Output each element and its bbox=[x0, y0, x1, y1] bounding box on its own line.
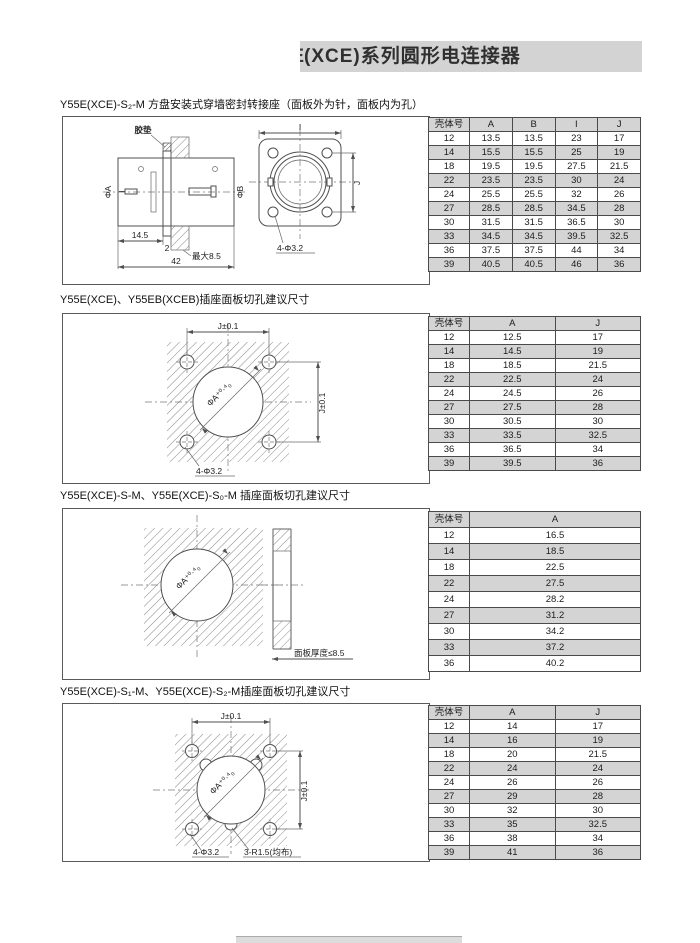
table-row: 3640.2 bbox=[429, 656, 641, 672]
table-cell: 39 bbox=[429, 846, 470, 860]
table-row: 3636.534 bbox=[429, 443, 641, 457]
wall-hatch-bottom bbox=[171, 226, 189, 250]
connector-drawing: 胶垫 ΦA ΦB 14.5 2 最大8.5 42 bbox=[63, 117, 427, 282]
mounting-hole bbox=[322, 207, 332, 217]
table-row: 1418.5 bbox=[429, 544, 641, 560]
table-cell: 39 bbox=[429, 258, 470, 272]
table-row: 141619 bbox=[429, 734, 641, 748]
table-cell: 18 bbox=[429, 748, 470, 762]
dimension-table-4: 壳体号AJ121417141619182021.5222424242626272… bbox=[428, 705, 641, 860]
table-cell: 17 bbox=[555, 331, 641, 345]
notches-label: 3-R1.5(均布) bbox=[244, 847, 292, 857]
table-cell: 17 bbox=[555, 720, 641, 734]
table-row: 3337.2 bbox=[429, 640, 641, 656]
table-row: 242626 bbox=[429, 776, 641, 790]
table-cell: 17 bbox=[598, 132, 641, 146]
holes-label: 4-Φ3.2 bbox=[196, 466, 222, 476]
section-3-drawing: ΦA⁺⁰·⁴₀ 面板厚度≤8.5 bbox=[62, 508, 430, 680]
table-cell: 24 bbox=[429, 592, 470, 608]
table-cell: 41 bbox=[470, 846, 556, 860]
panel-cutout-drawing: ΦA⁺⁰·⁴₀ 面板厚度≤8.5 bbox=[63, 509, 427, 677]
table-cell: 27 bbox=[429, 202, 470, 216]
dim-j-label: J bbox=[352, 181, 362, 185]
table-cell: 14 bbox=[429, 544, 470, 560]
table-cell: 39.5 bbox=[470, 457, 556, 471]
dim-42: 42 bbox=[171, 256, 181, 266]
table-cell: 33 bbox=[429, 640, 470, 656]
table-cell: 34 bbox=[555, 832, 641, 846]
holes-label: 4-Φ3.2 bbox=[277, 243, 303, 253]
section-4-drawing: ΦA⁺⁰·⁴₀ J±0.1 J±0.1 4-Φ3.2 3-R1.5(均布) bbox=[62, 703, 430, 862]
table-cell: 36 bbox=[429, 832, 470, 846]
column-header: J bbox=[555, 706, 641, 720]
table-row: 1818.521.5 bbox=[429, 359, 641, 373]
table-row: 222424 bbox=[429, 762, 641, 776]
panel-cutout-drawing: ΦA⁺⁰·⁴₀ J±0.1 J±0.1 4-Φ3.2 bbox=[63, 314, 427, 481]
table-cell: 23 bbox=[555, 132, 598, 146]
gasket bbox=[163, 143, 171, 151]
table-row: 2424.526 bbox=[429, 387, 641, 401]
table-row: 1819.519.527.521.5 bbox=[429, 160, 641, 174]
table-cell: 12 bbox=[429, 132, 470, 146]
table-cell: 32.5 bbox=[555, 818, 641, 832]
table-cell: 27.5 bbox=[470, 576, 641, 592]
table-cell: 27.5 bbox=[555, 160, 598, 174]
column-header: A bbox=[470, 317, 556, 331]
table-cell: 18 bbox=[429, 359, 470, 373]
section-2-drawing: ΦA⁺⁰·⁴₀ J±0.1 J±0.1 4-Φ3.2 bbox=[62, 313, 430, 484]
table-cell: 24 bbox=[555, 762, 641, 776]
table-row: 121417 bbox=[429, 720, 641, 734]
contact-pin bbox=[125, 189, 137, 194]
table-row: 1216.5 bbox=[429, 528, 641, 544]
mounting-hole bbox=[268, 148, 278, 158]
panel-view: ΦA⁺⁰·⁴₀ J±0.1 J±0.1 4-Φ3.2 bbox=[145, 321, 327, 476]
table-cell: 30.5 bbox=[470, 415, 556, 429]
table-cell: 30 bbox=[429, 415, 470, 429]
table-cell: 23.5 bbox=[470, 174, 513, 188]
table-cell: 20 bbox=[470, 748, 556, 762]
table-row: 2728.528.534.528 bbox=[429, 202, 641, 216]
section-4-title: Y55E(XCE)-S₁-M、Y55E(XCE)-S₂-M插座面板切孔建议尺寸 bbox=[60, 683, 350, 699]
table-row: 2731.2 bbox=[429, 608, 641, 624]
table-cell: 18 bbox=[429, 160, 470, 174]
table-cell: 19.5 bbox=[470, 160, 513, 174]
table-row: 363834 bbox=[429, 832, 641, 846]
table-cell: 33 bbox=[429, 818, 470, 832]
table-cell: 32.5 bbox=[598, 230, 641, 244]
table-cell: 26 bbox=[555, 387, 641, 401]
table-cell: 14 bbox=[429, 345, 470, 359]
page-title-banner: E(XCE)系列圆形电连接器 bbox=[300, 41, 642, 72]
table-cell: 28.5 bbox=[512, 202, 555, 216]
table-cell: 39.5 bbox=[555, 230, 598, 244]
table-cell: 37.2 bbox=[470, 640, 641, 656]
table-row: 2428.2 bbox=[429, 592, 641, 608]
table-header-row: 壳体号ABIJ bbox=[429, 118, 641, 132]
table-cell: 12 bbox=[429, 720, 470, 734]
table-cell: 35 bbox=[470, 818, 556, 832]
table-cell: 16.5 bbox=[470, 528, 641, 544]
contact-socket bbox=[189, 188, 211, 195]
table-cell: 18.5 bbox=[470, 359, 556, 373]
table-cell: 36 bbox=[555, 846, 641, 860]
table-cell: 22 bbox=[429, 762, 470, 776]
table-cell: 31.5 bbox=[512, 216, 555, 230]
column-header: A bbox=[470, 706, 556, 720]
column-header: 壳体号 bbox=[429, 512, 470, 528]
dimension-table-3: 壳体号A1216.51418.51822.52227.52428.22731.2… bbox=[428, 511, 641, 672]
table-cell: 22 bbox=[429, 174, 470, 188]
table-cell: 12 bbox=[429, 331, 470, 345]
table-cell: 24 bbox=[470, 762, 556, 776]
mounting-hole bbox=[268, 207, 278, 217]
table-row: 2222.524 bbox=[429, 373, 641, 387]
table-cell: 27 bbox=[429, 401, 470, 415]
table-cell: 29 bbox=[470, 790, 556, 804]
table-row: 3034.2 bbox=[429, 624, 641, 640]
phi-b-label: ΦB bbox=[235, 185, 245, 198]
table-row: 1415.515.52519 bbox=[429, 146, 641, 160]
table-cell: 36.5 bbox=[555, 216, 598, 230]
dim-2: 2 bbox=[165, 243, 170, 253]
table-header-row: 壳体号A bbox=[429, 512, 641, 528]
table-cell: 14.5 bbox=[470, 345, 556, 359]
table-cell: 28 bbox=[555, 401, 641, 415]
column-header: A bbox=[470, 512, 641, 528]
table-cell: 40.2 bbox=[470, 656, 641, 672]
table-cell: 33 bbox=[429, 429, 470, 443]
table-row: 182021.5 bbox=[429, 748, 641, 762]
table-cell: 34.5 bbox=[555, 202, 598, 216]
column-header: J bbox=[555, 317, 641, 331]
table-cell: 24 bbox=[598, 174, 641, 188]
dim-j-top: J±0.1 bbox=[218, 321, 239, 331]
table-row: 3939.536 bbox=[429, 457, 641, 471]
table-cell: 19 bbox=[598, 146, 641, 160]
table-cell: 24 bbox=[429, 188, 470, 202]
table-cell: 30 bbox=[555, 415, 641, 429]
table-cell: 34.5 bbox=[470, 230, 513, 244]
table-cell: 22 bbox=[429, 373, 470, 387]
table-row: 3334.534.539.532.5 bbox=[429, 230, 641, 244]
table-cell: 14 bbox=[429, 734, 470, 748]
table-cell: 33 bbox=[429, 230, 470, 244]
column-header: J bbox=[598, 118, 641, 132]
flange-plate bbox=[163, 151, 171, 236]
dimension-table-1: 壳体号ABIJ1213.513.523171415.515.525191819.… bbox=[428, 117, 641, 272]
dim-i-label: I bbox=[299, 122, 301, 132]
table-cell: 14 bbox=[429, 146, 470, 160]
table-cell: 28.5 bbox=[470, 202, 513, 216]
table-cell: 22.5 bbox=[470, 560, 641, 576]
section-3-title: Y55E(XCE)-S-M、Y55E(XCE)-S₀-M 插座面板切孔建议尺寸 bbox=[60, 487, 350, 503]
table-cell: 37.5 bbox=[512, 244, 555, 258]
table-cell: 32 bbox=[555, 188, 598, 202]
table-cell: 34.2 bbox=[470, 624, 641, 640]
table-row: 394136 bbox=[429, 846, 641, 860]
table-cell: 13.5 bbox=[512, 132, 555, 146]
column-header: 壳体号 bbox=[429, 706, 470, 720]
section-1-drawing: 胶垫 ΦA ΦB 14.5 2 最大8.5 42 bbox=[62, 116, 430, 285]
table-cell: 19.5 bbox=[512, 160, 555, 174]
dimension-table-2: 壳体号AJ1212.5171414.5191818.521.52222.5242… bbox=[428, 316, 641, 471]
table-cell: 28 bbox=[598, 202, 641, 216]
table-cell: 36 bbox=[555, 457, 641, 471]
table-cell: 36 bbox=[598, 258, 641, 272]
column-header: 壳体号 bbox=[429, 317, 470, 331]
table-cell: 36.5 bbox=[470, 443, 556, 457]
mounting-hole bbox=[322, 148, 332, 158]
table-cell: 26 bbox=[470, 776, 556, 790]
table-header-row: 壳体号AJ bbox=[429, 706, 641, 720]
table-cell: 16 bbox=[470, 734, 556, 748]
table-cell: 23.5 bbox=[512, 174, 555, 188]
column-header: I bbox=[555, 118, 598, 132]
table-cell: 33.5 bbox=[470, 429, 556, 443]
table-row: 303230 bbox=[429, 804, 641, 818]
table-cell: 22 bbox=[429, 576, 470, 592]
table-cell: 25.5 bbox=[470, 188, 513, 202]
table-cell: 31.5 bbox=[470, 216, 513, 230]
table-cell: 36 bbox=[429, 244, 470, 258]
table-cell: 44 bbox=[555, 244, 598, 258]
table-cell: 19 bbox=[555, 345, 641, 359]
table-row: 1414.519 bbox=[429, 345, 641, 359]
table-cell: 24 bbox=[555, 373, 641, 387]
table-cell: 12 bbox=[429, 528, 470, 544]
table-cell: 15.5 bbox=[470, 146, 513, 160]
table-cell: 27 bbox=[429, 608, 470, 624]
table-row: 1822.5 bbox=[429, 560, 641, 576]
table-cell: 36 bbox=[429, 656, 470, 672]
column-header: B bbox=[512, 118, 555, 132]
table-cell: 21.5 bbox=[555, 359, 641, 373]
table-cell: 24 bbox=[429, 387, 470, 401]
table-cell: 34.5 bbox=[512, 230, 555, 244]
table-cell: 38 bbox=[470, 832, 556, 846]
table-cell: 30 bbox=[429, 624, 470, 640]
gasket-label: 胶垫 bbox=[134, 125, 152, 135]
table-cell: 19 bbox=[555, 734, 641, 748]
footer-banner-partial bbox=[236, 936, 462, 943]
dim-14-5: 14.5 bbox=[132, 230, 149, 240]
table-row: 333532.5 bbox=[429, 818, 641, 832]
table-cell: 30 bbox=[598, 216, 641, 230]
table-row: 1212.517 bbox=[429, 331, 641, 345]
table-cell: 13.5 bbox=[470, 132, 513, 146]
table-cell: 32 bbox=[470, 804, 556, 818]
table-cell: 24.5 bbox=[470, 387, 556, 401]
table-row: 3030.530 bbox=[429, 415, 641, 429]
table-cell: 18.5 bbox=[470, 544, 641, 560]
table-cell: 27 bbox=[429, 790, 470, 804]
table-cell: 12.5 bbox=[470, 331, 556, 345]
table-cell: 46 bbox=[555, 258, 598, 272]
dim-max-8-5: 最大8.5 bbox=[192, 251, 221, 261]
table-cell: 24 bbox=[429, 776, 470, 790]
table-row: 2223.523.53024 bbox=[429, 174, 641, 188]
table-row: 3031.531.536.530 bbox=[429, 216, 641, 230]
panel-view: ΦA⁺⁰·⁴₀ J±0.1 J±0.1 4-Φ3.2 3-R1.5(均布) bbox=[153, 711, 309, 857]
table-row: 3940.540.54636 bbox=[429, 258, 641, 272]
panel-side-view: 面板厚度≤8.5 bbox=[261, 529, 353, 661]
table-cell: 30 bbox=[555, 804, 641, 818]
table-cell: 34 bbox=[555, 443, 641, 457]
table-row: 1213.513.52317 bbox=[429, 132, 641, 146]
table-row: 2227.5 bbox=[429, 576, 641, 592]
table-cell: 27.5 bbox=[470, 401, 556, 415]
table-cell: 30 bbox=[429, 216, 470, 230]
section-1-title: Y55E(XCE)-S₂-M 方盘安装式穿墙密封转接座（面板外为针，面板内为孔） bbox=[60, 96, 423, 112]
table-cell: 28.2 bbox=[470, 592, 641, 608]
table-row: 2727.528 bbox=[429, 401, 641, 415]
panel-thickness-label: 面板厚度≤8.5 bbox=[294, 648, 345, 658]
table-cell: 22.5 bbox=[470, 373, 556, 387]
table-cell: 39 bbox=[429, 457, 470, 471]
table-cell: 36 bbox=[429, 443, 470, 457]
dim-j-right: J±0.1 bbox=[317, 392, 327, 413]
table-cell: 15.5 bbox=[512, 146, 555, 160]
section-2-title: Y55E(XCE)、Y55EB(XCEB)插座面板切孔建议尺寸 bbox=[60, 291, 309, 307]
table-cell: 14 bbox=[470, 720, 556, 734]
table-cell: 30 bbox=[555, 174, 598, 188]
column-header: A bbox=[470, 118, 513, 132]
table-cell: 37.5 bbox=[470, 244, 513, 258]
table-cell: 21.5 bbox=[555, 748, 641, 762]
table-cell: 30 bbox=[429, 804, 470, 818]
table-cell: 26 bbox=[598, 188, 641, 202]
table-header-row: 壳体号AJ bbox=[429, 317, 641, 331]
phi-a-label: ΦA bbox=[103, 185, 113, 198]
table-cell: 40.5 bbox=[470, 258, 513, 272]
table-cell: 21.5 bbox=[598, 160, 641, 174]
table-cell: 32.5 bbox=[555, 429, 641, 443]
panel-view: ΦA⁺⁰·⁴₀ bbox=[121, 515, 285, 659]
column-header: 壳体号 bbox=[429, 118, 470, 132]
table-cell: 40.5 bbox=[512, 258, 555, 272]
table-cell: 31.2 bbox=[470, 608, 641, 624]
table-cell: 26 bbox=[555, 776, 641, 790]
table-row: 272928 bbox=[429, 790, 641, 804]
dim-j-right: J±0.1 bbox=[299, 780, 309, 801]
side-view: 胶垫 ΦA ΦB 14.5 2 最大8.5 42 bbox=[103, 125, 248, 269]
holes-label: 4-Φ3.2 bbox=[193, 847, 219, 857]
table-cell: 25 bbox=[555, 146, 598, 160]
table-cell: 34 bbox=[598, 244, 641, 258]
table-row: 3333.532.5 bbox=[429, 429, 641, 443]
wall-hatch-top bbox=[171, 137, 189, 158]
table-cell: 28 bbox=[555, 790, 641, 804]
front-view: I J 4-Φ3.2 bbox=[249, 122, 362, 253]
table-cell: 25.5 bbox=[512, 188, 555, 202]
table-row: 3637.537.54434 bbox=[429, 244, 641, 258]
panel-cutout-drawing: ΦA⁺⁰·⁴₀ J±0.1 J±0.1 4-Φ3.2 3-R1.5(均布) bbox=[63, 704, 427, 859]
dim-j-top: J±0.1 bbox=[221, 711, 242, 721]
datasheet-page: E(XCE)系列圆形电连接器 Y55E(XCE)-S₂-M 方盘安装式穿墙密封转… bbox=[0, 0, 700, 943]
table-cell: 18 bbox=[429, 560, 470, 576]
table-row: 2425.525.53226 bbox=[429, 188, 641, 202]
page-title: (XCE)系列圆形电连接器 bbox=[304, 41, 521, 72]
